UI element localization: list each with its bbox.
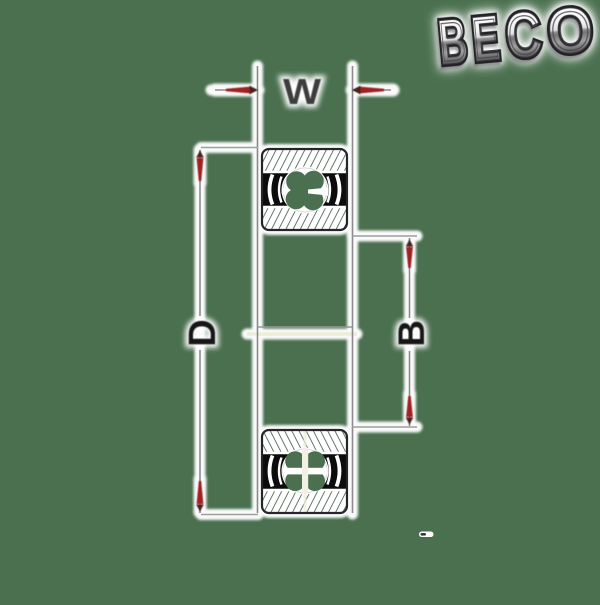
- svg-text:B: B: [391, 320, 432, 347]
- svg-text:O: O: [548, 0, 592, 63]
- svg-text:D: D: [182, 319, 224, 346]
- svg-text:W: W: [283, 72, 322, 113]
- svg-text:C: C: [505, 4, 541, 68]
